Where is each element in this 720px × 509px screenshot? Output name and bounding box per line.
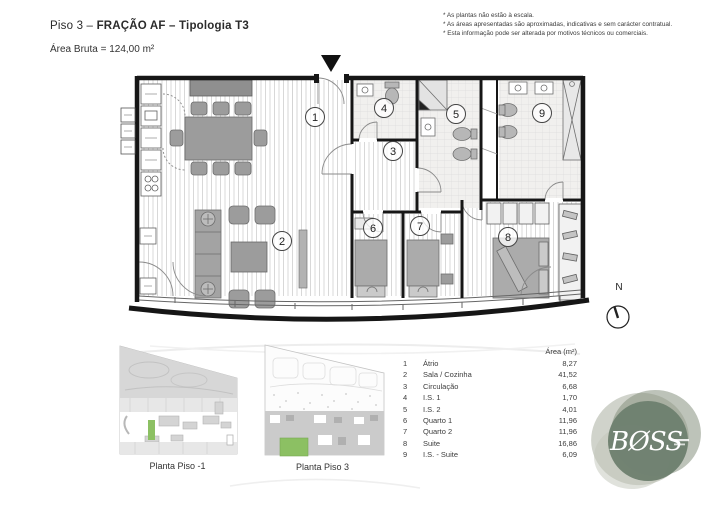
compass-north-label: N (599, 282, 639, 293)
room-number: 7 (403, 426, 423, 437)
room-area: 11,96 (535, 426, 579, 437)
coffee-table (231, 242, 267, 272)
room-marker-9: 9 (533, 104, 552, 123)
room-marker-7: 7 (411, 217, 430, 236)
svg-text:8: 8 (505, 232, 511, 244)
disclaimer-line: * Esta informação pode ser alterada por … (443, 29, 715, 38)
room-number: 2 (403, 369, 423, 380)
room-name: Suite (423, 438, 535, 449)
svg-text:2: 2 (279, 236, 285, 248)
room-area: 6,68 (535, 381, 579, 392)
room-name: Quarto 2 (423, 426, 535, 437)
thumbnail-piso-minus1 (115, 342, 240, 458)
entrance-arrow-icon (321, 55, 341, 72)
page-title-prefix: Piso 3 – (50, 20, 97, 32)
room-marker-1: 1 (306, 108, 325, 127)
room-area: 11,96 (535, 415, 579, 426)
plan-sheet: Piso 3 – FRAÇÃO AF – Tipologia T3 Área B… (0, 0, 720, 509)
room-marker-6: 6 (364, 219, 383, 238)
floor-plan-drawing: 1 2 3 4 5 6 7 8 9 (115, 48, 590, 348)
sofa (195, 210, 221, 298)
legend-row: 3Circulação6,68 (403, 381, 579, 392)
thumbnail-piso3 (258, 343, 387, 458)
room-area: 1,70 (535, 392, 579, 403)
room-number: 4 (403, 392, 423, 403)
disclaimer-notes: * As plantas não estão à escala. * As ár… (443, 11, 715, 38)
room-marker-3: 3 (384, 142, 403, 161)
room-number: 1 (403, 358, 423, 369)
svg-text:6: 6 (370, 223, 376, 235)
room-name: Átrio (423, 358, 535, 369)
room-area: 8,27 (535, 358, 579, 369)
room-name: I.S. 2 (423, 404, 535, 415)
highlight-fraction (280, 438, 308, 456)
page-title: Piso 3 – FRAÇÃO AF – Tipologia T3 (50, 20, 249, 32)
svg-text:7: 7 (417, 221, 423, 233)
room-number: 6 (403, 415, 423, 426)
room-marker-2: 2 (273, 232, 292, 251)
room-area: 16,86 (535, 438, 579, 449)
highlight-fraction (148, 420, 155, 440)
room-number: 8 (403, 438, 423, 449)
legend-row: 1Átrio8,27 (403, 358, 579, 369)
room-name: I.S. - Suite (423, 449, 535, 460)
legend-row: 5I.S. 24,01 (403, 404, 579, 415)
room-name: Quarto 1 (423, 415, 535, 426)
legend-row: 9I.S. - Suite6,09 (403, 449, 579, 460)
legend-row: 8Suite16,86 (403, 438, 579, 449)
bed-suite (493, 238, 549, 298)
legend-row: 4I.S. 11,70 (403, 392, 579, 403)
room-name: Circulação (423, 381, 535, 392)
north-compass: N (598, 282, 642, 340)
room-number: 3 (403, 381, 423, 392)
room-area: 6,09 (535, 449, 579, 460)
room-name: I.S. 1 (423, 392, 535, 403)
tv-cabinet (299, 230, 307, 288)
exterior-annex-boxes (121, 108, 135, 154)
boss-logo-text: BØSS (609, 427, 682, 457)
room-number: 9 (403, 449, 423, 460)
room-area: 4,01 (535, 404, 579, 415)
svg-text:5: 5 (453, 109, 459, 121)
boss-logo-icon: BØSS (582, 383, 717, 503)
compass-icon (598, 293, 642, 339)
floor-plan-container: 1 2 3 4 5 6 7 8 9 (115, 48, 590, 348)
boss-logo: BØSS (582, 383, 717, 503)
room-marker-5: 5 (447, 105, 466, 124)
legend-header-area: Área (m²) (403, 346, 579, 358)
legend-row: 2Sala / Cozinha41,52 (403, 369, 579, 380)
disclaimer-line: * As áreas apresentadas são aproximadas,… (443, 20, 715, 29)
thumbnail-label-piso3: Planta Piso 3 (258, 462, 387, 472)
room-area: 41,52 (535, 369, 579, 380)
area-legend-table: Área (m²) 1Átrio8,27 2Sala / Cozinha41,5… (403, 346, 579, 461)
legend-row: 7Quarto 211,96 (403, 426, 579, 437)
disclaimer-line: * As plantas não estão à escala. (443, 11, 715, 20)
legend-row: 6Quarto 111,96 (403, 415, 579, 426)
svg-text:4: 4 (381, 103, 387, 115)
technical-shaft (481, 78, 497, 200)
svg-text:9: 9 (539, 108, 545, 120)
svg-text:1: 1 (312, 112, 318, 124)
thumbnail-label-piso-minus1: Planta Piso -1 (115, 461, 240, 471)
room-number: 5 (403, 404, 423, 415)
svg-text:3: 3 (390, 146, 396, 158)
room-marker-4: 4 (375, 99, 394, 118)
room-name: Sala / Cozinha (423, 369, 535, 380)
page-title-bold: FRAÇÃO AF – Tipologia T3 (97, 20, 249, 32)
room-marker-8: 8 (499, 228, 518, 247)
